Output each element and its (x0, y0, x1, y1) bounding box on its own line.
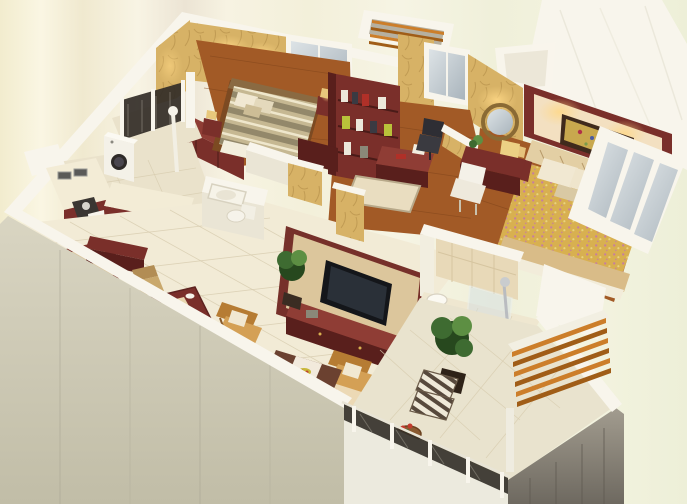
lime-box (384, 124, 392, 136)
floor-plan-render (0, 0, 687, 504)
railing-post (466, 457, 470, 483)
books (344, 142, 351, 155)
media-player (306, 310, 318, 318)
railing-post (352, 406, 356, 432)
books (356, 119, 363, 131)
books (378, 97, 386, 109)
kettle (82, 202, 90, 210)
hall-wall-panel (332, 182, 366, 242)
books (362, 94, 369, 106)
red-book (396, 154, 406, 159)
railing-post (500, 472, 504, 498)
railing-post (151, 89, 155, 131)
books (370, 121, 377, 133)
place-setting (186, 293, 195, 298)
sink (74, 169, 87, 176)
study-window (424, 42, 470, 106)
railing-post (390, 423, 394, 449)
books (360, 146, 368, 158)
washing-machine (104, 132, 138, 182)
sink (58, 172, 71, 179)
awning-post (506, 408, 514, 472)
pole-cap (168, 106, 178, 116)
railing-post (120, 98, 124, 140)
floor-plan-canvas (0, 0, 687, 504)
books (352, 92, 358, 104)
shower-head (500, 277, 510, 287)
lime-box (342, 116, 350, 129)
books (341, 90, 348, 102)
door-frame (420, 234, 434, 300)
wall-column (186, 72, 195, 128)
railing-post (181, 80, 185, 122)
railing-post (428, 440, 432, 466)
